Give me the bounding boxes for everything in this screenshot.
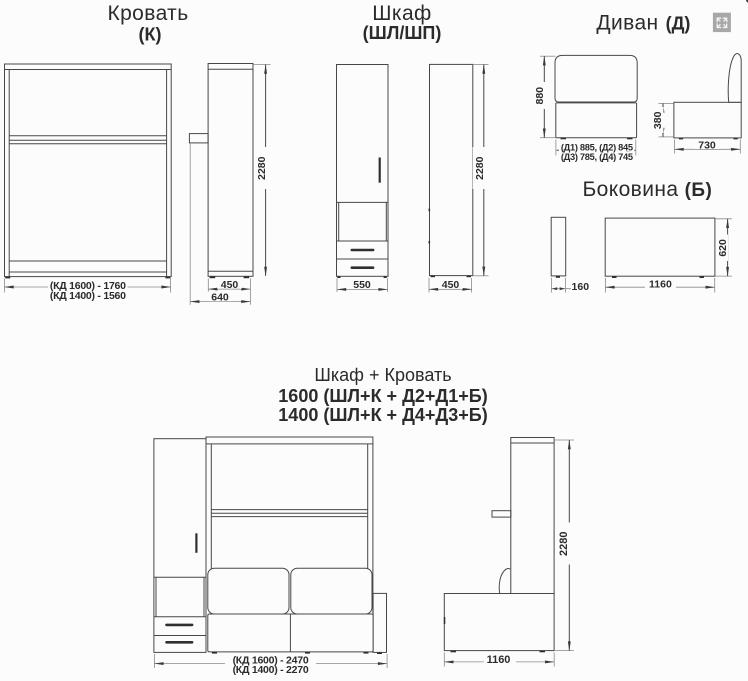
svg-text:1160: 1160 xyxy=(487,654,511,666)
svg-text:Диван: Диван xyxy=(596,12,658,35)
svg-text:160: 160 xyxy=(572,281,590,293)
svg-text:(Д): (Д) xyxy=(666,14,691,34)
svg-text:620: 620 xyxy=(717,239,729,257)
svg-text:(КД 1400) - 1560: (КД 1400) - 1560 xyxy=(50,290,126,302)
svg-text:1600 (ШЛ+К + Д2+Д1+Б): 1600 (ШЛ+К + Д2+Д1+Б) xyxy=(278,386,487,406)
svg-text:450: 450 xyxy=(221,279,239,291)
svg-text:550: 550 xyxy=(353,279,371,291)
svg-text:2280: 2280 xyxy=(256,156,268,180)
svg-text:1160: 1160 xyxy=(649,279,672,291)
svg-text:Боковина (Б): Боковина (Б) xyxy=(583,178,713,201)
svg-text:640: 640 xyxy=(211,291,229,303)
svg-text:(К): (К) xyxy=(139,25,162,45)
svg-text:(ШЛ/ШП): (ШЛ/ШП) xyxy=(363,23,442,43)
svg-text:1400 (ШЛ+К + Д4+Д3+Б): 1400 (ШЛ+К + Д4+Д3+Б) xyxy=(278,405,487,425)
svg-text:2280: 2280 xyxy=(474,156,486,180)
svg-text:2280: 2280 xyxy=(558,531,570,555)
svg-text:Шкаф + Кровать: Шкаф + Кровать xyxy=(314,365,451,385)
svg-text:(КД 1400) - 2270: (КД 1400) - 2270 xyxy=(233,664,309,676)
svg-text:450: 450 xyxy=(442,279,460,291)
svg-text:880: 880 xyxy=(534,87,546,105)
svg-text:730: 730 xyxy=(698,139,716,151)
svg-text:(Д3) 785, (Д4) 745: (Д3) 785, (Д4) 745 xyxy=(561,152,633,162)
svg-text:Шкаф: Шкаф xyxy=(372,2,431,25)
svg-text:380: 380 xyxy=(652,111,664,129)
svg-text:Кровать: Кровать xyxy=(107,2,188,25)
